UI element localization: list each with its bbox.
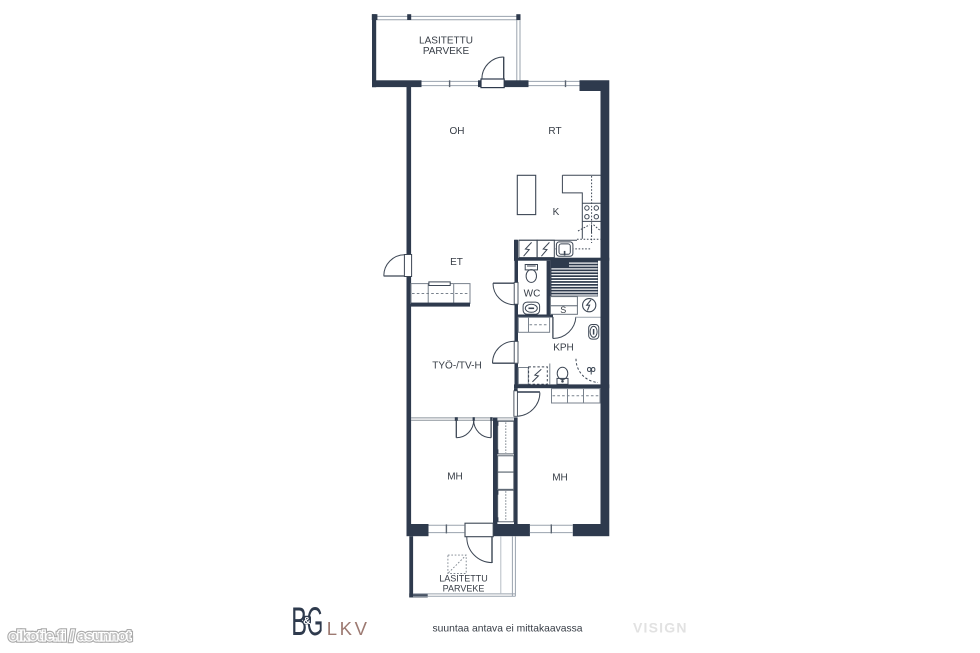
svg-text:TYÖ-/TV-H: TYÖ-/TV-H [432, 360, 481, 372]
svg-text:OH: OH [450, 126, 465, 137]
svg-text:LKV: LKV [327, 618, 370, 639]
svg-text:MH: MH [447, 472, 463, 483]
svg-text:LASITETTU: LASITETTU [439, 574, 488, 584]
svg-text:PARVEKE: PARVEKE [423, 46, 470, 57]
svg-text:MH: MH [552, 473, 568, 484]
svg-text:&: & [303, 615, 311, 627]
svg-text:LASITETTU: LASITETTU [419, 36, 473, 47]
svg-text:KPH: KPH [553, 342, 574, 353]
svg-text:VISIGN: VISIGN [633, 620, 688, 636]
svg-text:oikotie.fi / asunnot: oikotie.fi / asunnot [9, 629, 132, 644]
svg-text:suuntaa antava ei mittakaavass: suuntaa antava ei mittakaavassa [433, 624, 583, 635]
svg-text:S: S [560, 305, 566, 315]
svg-text:ET: ET [450, 257, 463, 268]
svg-text:RT: RT [548, 126, 561, 137]
svg-text:WC: WC [524, 289, 541, 300]
svg-text:PARVEKE: PARVEKE [443, 584, 485, 594]
svg-text:K: K [553, 207, 560, 218]
